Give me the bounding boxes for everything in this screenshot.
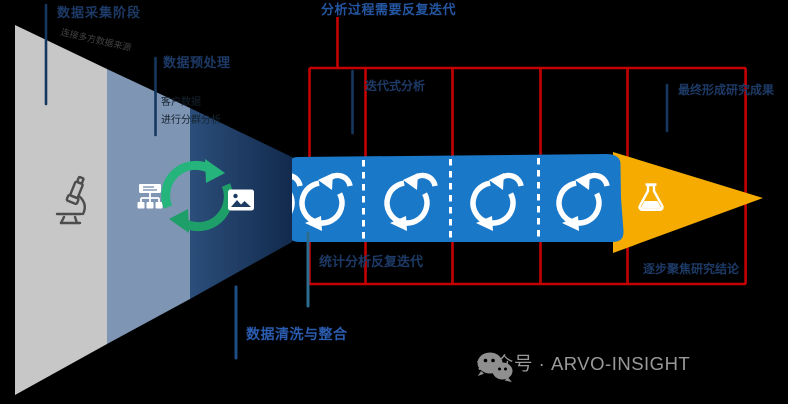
label-preprocess: 数据预处理 <box>163 56 231 71</box>
output-arrow <box>613 152 763 253</box>
label-focus-conclusion: 逐步聚焦研究结论 <box>643 263 739 277</box>
label-iterative-analysis: 迭代式分析 <box>365 80 425 94</box>
label-iteration-process: 分析过程需要反复迭代 <box>321 3 456 18</box>
label-research-output: 最终形成研究成果 <box>678 84 774 98</box>
red-grid-lines <box>310 17 747 284</box>
label-data-cleaning: 数据清洗与整合 <box>246 326 348 342</box>
note-segmentation: 进行分群分析 <box>161 115 221 127</box>
label-stats-iteration: 统计分析反复迭代 <box>319 255 423 270</box>
wechat-icon <box>476 350 514 384</box>
photo-icon <box>228 190 254 211</box>
label-data-collection: 数据采集阶段 <box>57 6 141 21</box>
watermark: 公众号 · ARVO-INSIGHT <box>476 350 690 376</box>
note-customer-data: 客户数据 <box>161 97 201 109</box>
diagram-artwork <box>0 0 788 404</box>
funnel-segment-collect <box>15 25 107 395</box>
diagram-canvas: 数据采集阶段 连接多方数据来源 数据预处理 客户数据 进行分群分析 分析过程需要… <box>0 0 788 404</box>
